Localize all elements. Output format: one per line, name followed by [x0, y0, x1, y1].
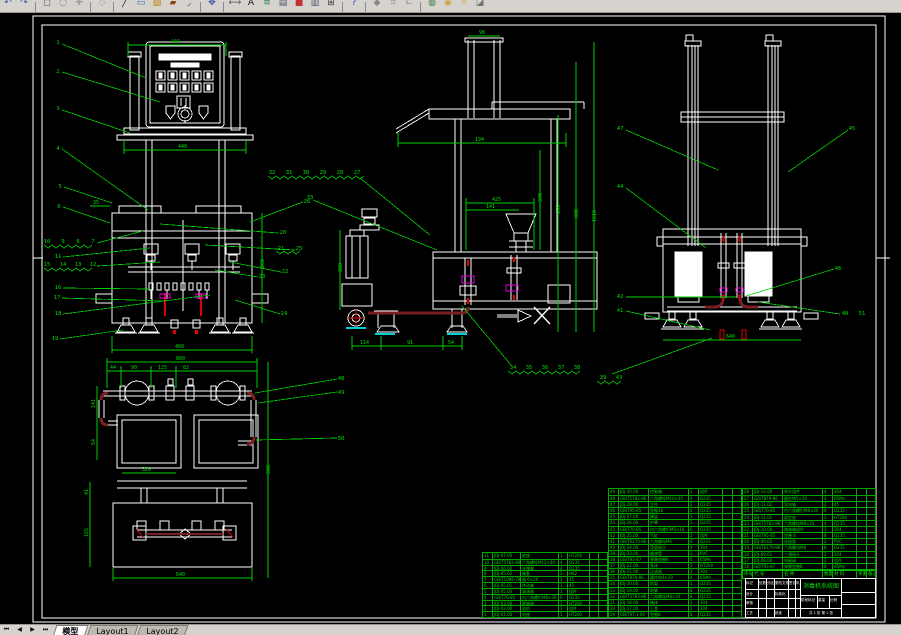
render-icon[interactable]: ◍: [425, 0, 439, 12]
osnap-icon[interactable]: ◆: [370, 0, 384, 12]
cad-application-window: ↶↷◻◌✛◇╱▭▨▰◞✥⟷A≡▤■▥⊞?◆⌗∟◍◉☼◪: [0, 0, 901, 635]
bom-header-cell: 代 号: [752, 571, 782, 578]
table-cell: [774, 599, 788, 608]
title-block-cell: [842, 592, 875, 605]
table-row: 审核: [746, 598, 800, 608]
balloon-label: 48: [338, 376, 345, 382]
table-cell: HT200: [567, 612, 589, 617]
table-cell: [795, 590, 800, 599]
tab-layout1[interactable]: Layout1: [86, 625, 139, 635]
dim-label: 880: [574, 209, 580, 218]
table-cell: 签名: [788, 579, 795, 589]
undo-icon[interactable]: ↶: [1, 0, 15, 12]
table-cell: 工艺: [746, 609, 758, 618]
balloon-label: 14: [60, 262, 67, 268]
table-cell: 机座: [520, 612, 558, 617]
balloon-label: 20: [280, 230, 287, 236]
rect-icon[interactable]: ▭: [134, 0, 148, 12]
table-cell: 1: [558, 612, 567, 617]
balloon-label: 3: [56, 106, 59, 112]
toolbar-separator: [90, 2, 91, 12]
zoom-window-icon[interactable]: ◻: [40, 0, 54, 12]
drawing-title: 消毒机系统图: [801, 579, 841, 596]
balloon-label: 35: [526, 365, 533, 371]
dim-label: 35: [93, 200, 99, 206]
dim-label: 260: [260, 259, 266, 268]
balloon-label: 11: [55, 254, 62, 260]
bom-header-cell: 单重: [856, 571, 866, 578]
dim-label: 98: [479, 30, 485, 36]
table-cell: [866, 564, 875, 569]
stage-mark-label: 阶段标记: [801, 596, 817, 608]
line-icon[interactable]: ╱: [118, 0, 132, 12]
balloon-label: 41: [617, 308, 624, 314]
toolbar-separator: [365, 2, 366, 12]
dim-label: 425: [492, 197, 501, 203]
hatch-icon[interactable]: ▨: [150, 0, 164, 12]
text-icon[interactable]: A: [244, 0, 258, 12]
toolbar-separator: [420, 2, 421, 12]
balloon-label: 38: [574, 365, 581, 371]
table-cell: [758, 609, 766, 618]
balloon-label: 31: [286, 170, 293, 176]
bom-table-small: 11JDJ-07.00底座1HT200 10GB/T5782-86六角螺栓M12…: [482, 552, 608, 618]
table-cell: [589, 612, 598, 617]
bom-header-cell: 备注: [866, 571, 875, 578]
balloon-label: 18: [55, 311, 62, 317]
table-cell: 年月日: [795, 579, 800, 589]
table-cell: 审核: [746, 599, 758, 608]
view-icon[interactable]: ◉: [441, 0, 455, 12]
side-view: 98 194 425 141 370 655 880 1510 114 91 5…: [268, 30, 712, 384]
balloon-label: 19: [52, 336, 59, 342]
balloon-label: 27: [354, 170, 361, 176]
balloon-label: 10: [44, 239, 51, 245]
balloon-label: 29: [320, 170, 327, 176]
redo-icon[interactable]: ↷: [17, 0, 31, 12]
rear-view: 640 47 45 44 42 41 46 40 51: [617, 35, 866, 340]
table-cell: Q235: [698, 612, 722, 617]
fillet-icon[interactable]: ◞: [182, 0, 196, 12]
title-block-cell: [842, 604, 875, 617]
scale-label: 比例: [829, 596, 841, 608]
balloon-label: 16: [55, 285, 62, 291]
table-cell: 8: [822, 564, 832, 569]
dim-label: 41: [84, 489, 90, 495]
bom-table-right: 28JDJ-12.00喷头组件4304 27GB/T879-86圆柱销5×304…: [742, 488, 876, 570]
help-icon[interactable]: ?: [347, 0, 361, 12]
balloon-label: 44: [617, 184, 624, 190]
table-cell: 分区: [766, 579, 774, 589]
balloon-label: 9: [61, 239, 64, 245]
table-cell: 设计: [746, 590, 758, 599]
layer-icon[interactable]: ≡: [260, 0, 274, 12]
table-cell: [758, 590, 766, 599]
bom-header-cell: 序号: [743, 571, 752, 578]
table-cell: 1: [483, 612, 492, 617]
last-tab-button[interactable]: ⏭: [39, 625, 52, 635]
plan-view: 800 44 90 125 82 141 54 41 165 320 640 5…: [84, 356, 344, 581]
dim-label: 141: [91, 399, 97, 408]
dim-label: 460: [175, 344, 184, 350]
tab-label: Layout1: [96, 626, 128, 635]
dim-label: 288: [338, 263, 344, 272]
sheet-count: 共 1 张 第 1 张: [801, 609, 841, 617]
tab-label: Layout2: [147, 626, 179, 635]
snap-icon[interactable]: ◇: [95, 0, 109, 12]
dim-label: 508: [266, 465, 272, 474]
dim-label: 44: [110, 365, 116, 371]
table-cell: 29: [609, 612, 618, 617]
table-row: 16GB/T93-87弹簧垫圈8865Mn: [743, 563, 875, 569]
layout-tab-bar: ⏮ ◀ ▶ ⏭ 模型 Layout1 Layout2: [0, 624, 901, 635]
dim-label: 114: [360, 340, 369, 346]
table-row: 1JDJ-01.00机座1HT200: [483, 611, 607, 617]
toolbar-separator: [223, 2, 224, 12]
dim-label: 141: [486, 204, 495, 210]
table-cell: GB/T93-87: [752, 564, 782, 569]
balloon-label: 8: [76, 239, 79, 245]
table-cell: [598, 612, 607, 617]
dim-label: 54: [448, 340, 454, 346]
dim-label: 125: [158, 365, 167, 371]
title-block-right-cells: [842, 579, 875, 617]
dim-label: 91: [407, 340, 413, 346]
balloon-label: 30: [303, 170, 310, 176]
balloon-label: 47: [617, 126, 624, 132]
table-cell: 标记: [746, 579, 758, 589]
balloon-label: 2: [56, 69, 59, 75]
first-tab-button[interactable]: ⏮: [0, 625, 13, 635]
bom-table-left: 49JDJ-30.00控制箱1组件 48GB/T5782-86六角螺栓M10×3…: [608, 488, 742, 618]
weight-label: 重量: [817, 596, 829, 608]
title-block: 标记处数分区更改文件号签名年月日设计标准化审核工艺批准 消毒机系统图 阶段标记 …: [745, 578, 876, 618]
balloon-label: 17: [54, 295, 61, 301]
table-row: 标记处数分区更改文件号签名年月日: [746, 579, 800, 589]
material-icon[interactable]: ◪: [473, 0, 487, 12]
table-cell: 弹簧垫圈8: [782, 564, 822, 569]
balloon-label: 23: [259, 274, 266, 280]
balloon-label: 46: [835, 266, 842, 272]
dimension-icon[interactable]: ⟷: [228, 0, 242, 12]
ortho-icon[interactable]: ∟: [402, 0, 416, 12]
dim-label: 800: [176, 356, 185, 362]
balloon-label: 24: [281, 311, 288, 317]
table-cell: [788, 609, 795, 618]
layers-icon[interactable]: ▤: [276, 0, 290, 12]
tab-label: 模型: [62, 626, 78, 635]
balloon-label: 50: [338, 436, 345, 442]
table-cell: 8: [688, 612, 698, 617]
table-cell: [732, 612, 741, 617]
table-cell: JDJ-01.00: [492, 612, 520, 617]
tab-layout2[interactable]: Layout2: [136, 625, 189, 635]
balloon-label: 49: [338, 390, 345, 396]
table-cell: 16: [743, 564, 752, 569]
table-cell: [758, 599, 766, 608]
prev-tab-button[interactable]: ◀: [13, 625, 26, 635]
dim-label: 194: [475, 137, 484, 143]
front-view: 444 440 460 260 35 1 2 3 4 5 6 10 9 8 7 …: [44, 39, 311, 353]
balloon-label: 32: [269, 170, 276, 176]
toolbar-separator: [35, 2, 36, 12]
dim-label: 640: [176, 572, 185, 578]
pan-icon[interactable]: ✛: [72, 0, 86, 12]
balloon-label: 12: [90, 262, 97, 268]
table-cell: [856, 564, 866, 569]
color-icon[interactable]: ■: [292, 0, 306, 12]
table-row: 工艺批准: [746, 608, 800, 618]
dim-label: 440: [178, 144, 187, 150]
toolbar-separator: [342, 2, 343, 12]
balloon-label: 15: [44, 262, 51, 268]
zoom-realtime-icon[interactable]: ◌: [56, 0, 70, 12]
balloon-label: 37: [558, 365, 565, 371]
table-cell: [795, 609, 800, 618]
toolbar-separator: [200, 2, 201, 12]
table-cell: [788, 599, 795, 608]
dim-label: 370: [538, 193, 544, 202]
table-row: 29GB/T97.1-85垫圈88Q235: [609, 611, 741, 617]
balloon-label: 42: [617, 294, 624, 300]
table-cell: 更改文件号: [774, 579, 788, 589]
tab-model[interactable]: 模型: [52, 625, 89, 635]
table-cell: GB/T97.1-85: [618, 612, 648, 617]
next-tab-button[interactable]: ▶: [26, 625, 39, 635]
bom-header-cell: 名 称: [782, 571, 822, 578]
sun-icon[interactable]: ☼: [457, 0, 471, 12]
table-cell: 处数: [758, 579, 766, 589]
balloon-label: 7: [91, 239, 94, 245]
balloon-label: 5: [58, 184, 61, 190]
toolbar-separator: [113, 2, 114, 12]
table-cell: [788, 590, 795, 599]
table-cell: [766, 599, 774, 608]
balloon-label: 4: [56, 146, 60, 152]
table-row: 设计标准化: [746, 589, 800, 599]
dim-label: 320: [142, 467, 151, 473]
balloon-label: 28: [337, 170, 344, 176]
dim-label: 54: [91, 439, 97, 445]
balloon-label: 1: [56, 40, 59, 46]
dim-label: 444: [171, 39, 180, 45]
balloon-label: 34: [510, 365, 517, 371]
dim-label: 90: [131, 365, 137, 371]
dim-label: 1510: [592, 210, 598, 222]
table-cell: 65Mn: [832, 564, 856, 569]
table-cell: [766, 609, 774, 618]
balloon-label: 25: [296, 246, 303, 252]
side-x-mark: [534, 307, 550, 324]
balloon-label: 21: [278, 246, 285, 252]
erase-icon[interactable]: ▰: [166, 0, 180, 12]
balloon-label: 40: [842, 311, 849, 317]
balloon-label: 22: [282, 269, 289, 275]
table-cell: [766, 590, 774, 599]
title-block-cell: [842, 579, 875, 592]
balloon-label: 6: [57, 204, 60, 210]
balloon-label: 45: [849, 126, 856, 132]
table-cell: [795, 599, 800, 608]
balloon-label: 33: [307, 195, 314, 201]
dim-label: 82: [183, 365, 189, 371]
grid-icon[interactable]: ⌗: [386, 0, 400, 12]
table-cell: [722, 612, 732, 617]
table-cell: 批准: [774, 609, 788, 618]
title-block-revision-grid: 标记处数分区更改文件号签名年月日设计标准化审核工艺批准: [746, 579, 801, 617]
balloon-label: 13: [75, 262, 82, 268]
dim-label: 165: [84, 528, 90, 537]
move-icon[interactable]: ✥: [205, 0, 219, 12]
bom-header-cell: 材 料: [832, 571, 856, 578]
bom-header-cell: 数量: [822, 571, 832, 578]
dim-label: 655: [556, 205, 562, 214]
balloon-label: 43: [616, 375, 623, 381]
properties-icon[interactable]: ▥: [308, 0, 322, 12]
table-icon[interactable]: ⊞: [324, 0, 338, 12]
balloon-label: 36: [542, 365, 549, 371]
table-cell: 标准化: [774, 590, 788, 599]
balloon-label: 39: [600, 375, 607, 381]
balloon-label: 51: [859, 311, 866, 317]
dim-label: 640: [726, 334, 735, 340]
table-cell: 垫圈8: [648, 612, 688, 617]
